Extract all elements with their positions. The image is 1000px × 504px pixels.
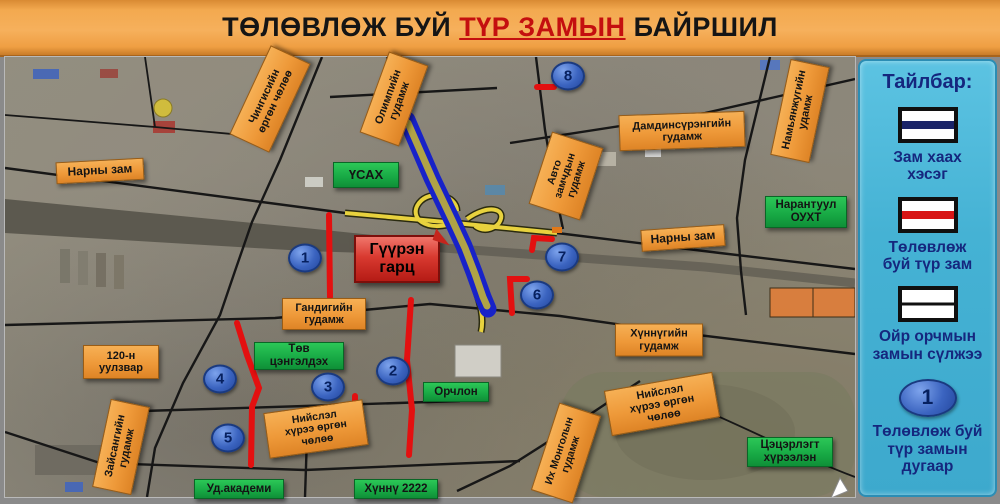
- warehouse-2: [78, 251, 88, 285]
- temp-road-marker-6: 6: [520, 281, 554, 310]
- place-label-usakh: ҮСАХ: [333, 162, 399, 188]
- road-label-naran-zam-west: Нарны зам: [55, 158, 144, 185]
- temp-road-marker-5: 5: [211, 424, 245, 453]
- warehouse-4: [114, 255, 124, 289]
- legend-number-marker: 1: [899, 379, 957, 417]
- railway-band-east: [430, 247, 855, 283]
- building-2: [305, 177, 323, 187]
- warehouse-1: [60, 249, 70, 283]
- road-north-vertical: [145, 57, 155, 127]
- legend-item-label: Төлөвлөж буй түр замын дугаар: [873, 423, 983, 475]
- warehouse-3: [96, 253, 106, 287]
- temp-road-marker-2: 2: [376, 357, 410, 386]
- legend-title: Тайлбар:: [883, 71, 973, 94]
- place-label-tsetserleg: Цэцэрлэгт хүрээлэн: [747, 437, 833, 467]
- ramp-end-tick: [552, 227, 562, 233]
- blue-roof-building-1: [33, 69, 59, 79]
- road-label-gandi: Гандигийн гудамж: [282, 298, 366, 330]
- temp-road-marker-3: 3: [311, 373, 345, 402]
- place-label-stadium: Төв цэнгэлдэх: [254, 342, 344, 370]
- bridge-crossing-callout: Гүүрэн гарц: [354, 235, 440, 283]
- temp-road-marker-1: 1: [288, 244, 322, 273]
- road-label-khunnu: Хүннүгийн гудамж: [615, 324, 703, 357]
- place-label-narantuul: Нарантуул ОУХТ: [765, 196, 847, 228]
- navy-stripe: [902, 121, 954, 129]
- title-prefix: ТӨЛӨВЛӨЖ БУЙ: [222, 12, 459, 42]
- temp-road-marker-8: 8: [551, 62, 585, 91]
- legend-item-label: Төлөвлөж буй түр зам: [883, 239, 972, 274]
- temp-road-marker-4: 4: [203, 365, 237, 394]
- temp-road-marker-7: 7: [545, 243, 579, 272]
- title-suffix: БАЙРШИЛ: [626, 12, 778, 42]
- legend-item-label: Ойр орчмын замын сүлжээ: [873, 328, 983, 363]
- legend-panel: Тайлбар: Зам хаах хэсэг Төлөвлөж буй түр…: [858, 59, 997, 497]
- red-stripe: [902, 211, 954, 219]
- blue-roof-building-3: [65, 482, 83, 492]
- thin-black-stripe: [902, 303, 954, 306]
- road-label-120-junction: 120-н уулзвар: [83, 345, 159, 379]
- place-label-ud-academy: Уд.академи: [194, 479, 284, 499]
- satellite-map: Нарны зам Чингисийн өргөн чөлөө Олимпийн…: [5, 57, 855, 497]
- page-title: ТӨЛӨВЛӨЖ БУЙ ТҮР ЗАМЫН БАЙРШИЛ: [222, 12, 778, 43]
- circus-building: [154, 99, 172, 117]
- road-northwest: [5, 115, 265, 137]
- temp-road-1: [329, 215, 330, 297]
- orchlon-building: [455, 345, 501, 377]
- nearby-road-network-swatch: [898, 286, 958, 322]
- place-label-orchlon: Орчлон: [423, 382, 489, 402]
- road-closed-swatch: [898, 107, 958, 143]
- building-4: [485, 185, 505, 195]
- title-bar: ТӨЛӨВЛӨЖ БУЙ ТҮР ЗАМЫН БАЙРШИЛ: [0, 0, 1000, 57]
- planned-temp-road-swatch: [898, 197, 958, 233]
- legend-item-label: Зам хаах хэсэг: [893, 149, 962, 184]
- place-label-khunnu-2222: Хүннү 2222: [354, 479, 438, 499]
- building-1: [100, 69, 118, 78]
- road-label-damdinsuren: Дамдинсүрэнгийн гудамж: [618, 111, 745, 151]
- road-south-2: [100, 461, 520, 470]
- title-highlight: ТҮР ЗАМЫН: [459, 12, 625, 42]
